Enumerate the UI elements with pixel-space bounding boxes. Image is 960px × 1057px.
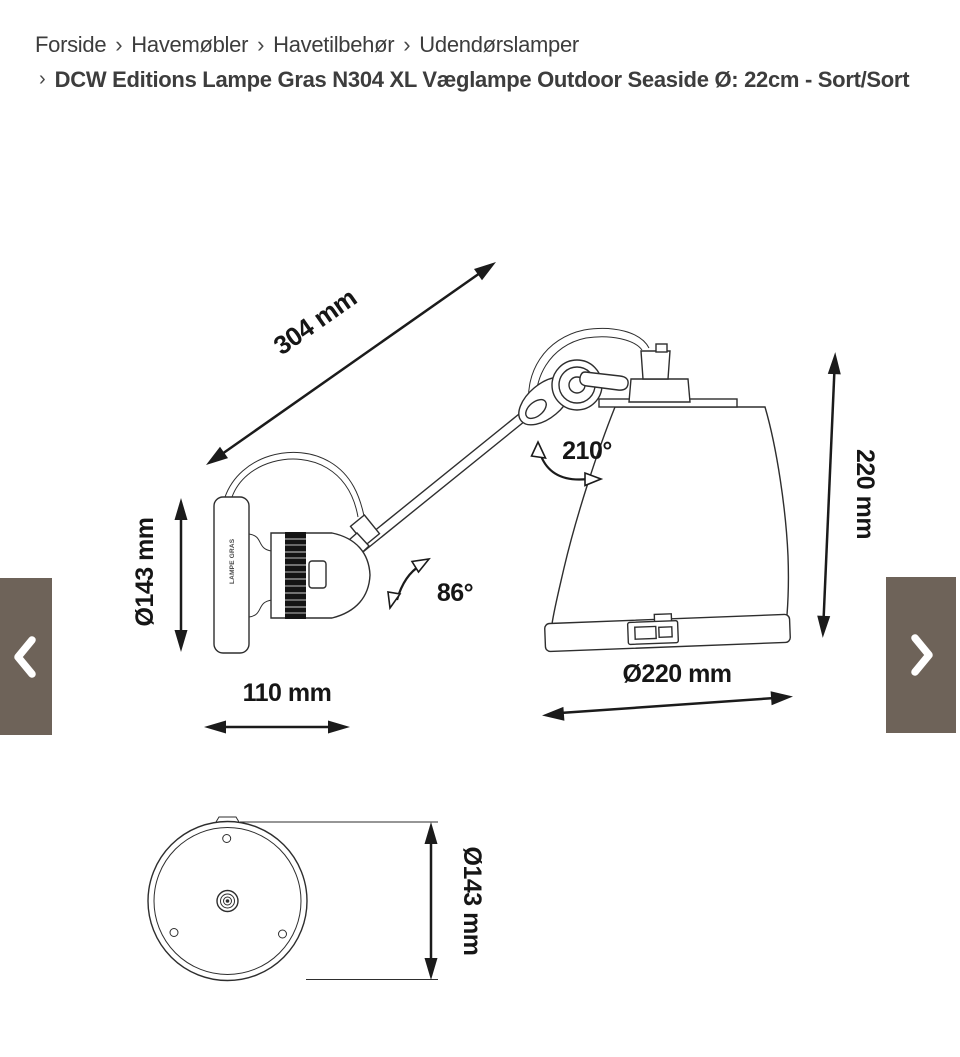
dimension-label-arm-rotation: 86° bbox=[437, 579, 473, 607]
dimension-label-arm-length: 304 mm bbox=[268, 282, 362, 360]
arm-rotation-indicator: 86° bbox=[388, 559, 473, 608]
carousel-prev-button[interactable] bbox=[0, 578, 52, 735]
breadcrumb-separator: › bbox=[115, 32, 122, 57]
bottom-view-diameter-dimension: Ø143 mm bbox=[240, 822, 486, 980]
chevron-left-icon bbox=[11, 635, 41, 679]
carousel-next-button[interactable] bbox=[886, 577, 956, 733]
shade-diameter-dimension: Ø220 mm bbox=[542, 660, 793, 721]
lamp-arm bbox=[341, 410, 530, 561]
breadcrumb-link-havetilbehor[interactable]: Havetilbehør bbox=[273, 32, 394, 57]
breadcrumb-link-udendorslamper[interactable]: Udendørslamper bbox=[419, 32, 579, 57]
wall-plate: LAMPE GRAS bbox=[214, 497, 249, 653]
screw-hole bbox=[170, 929, 178, 937]
base-diameter-dimension: Ø143 mm bbox=[131, 498, 188, 652]
breadcrumb-link-havemobler[interactable]: Havemøbler bbox=[131, 32, 248, 57]
breadcrumb-trail: Forside›Havemøbler›Havetilbehør›Udendørs… bbox=[35, 30, 945, 60]
product-title: DCW Editions Lampe Gras N304 XL Væglampe… bbox=[55, 63, 945, 96]
dimension-label-shade-diameter: Ø220 mm bbox=[622, 660, 731, 688]
knuckle-joint bbox=[249, 532, 370, 619]
head-rotation-indicator: 210° bbox=[532, 437, 612, 486]
product-image[interactable]: 304 mm LAMPE GRAS bbox=[0, 140, 960, 1057]
dimension-label-base-diameter: Ø143 mm bbox=[131, 517, 159, 626]
dimension-label-shade-height: 220 mm bbox=[851, 449, 879, 539]
breadcrumb-link-forside[interactable]: Forside bbox=[35, 32, 106, 57]
dimension-label-bottom-view-diameter: Ø143 mm bbox=[458, 846, 486, 955]
chevron-right-icon bbox=[906, 633, 936, 677]
breadcrumb-separator: › bbox=[257, 32, 264, 57]
dimension-label-head-rotation: 210° bbox=[562, 437, 612, 465]
screw-hole bbox=[223, 835, 231, 843]
breadcrumb-separator: › bbox=[39, 68, 46, 91]
screw-hole bbox=[279, 930, 287, 938]
plate-label: LAMPE GRAS bbox=[229, 538, 236, 584]
breadcrumb: Forside›Havemøbler›Havetilbehør›Udendørs… bbox=[35, 30, 945, 96]
shade-height-dimension: 220 mm bbox=[816, 352, 879, 638]
base-depth-dimension: 110 mm bbox=[204, 679, 350, 734]
breadcrumb-separator: › bbox=[403, 32, 410, 57]
bottom-view bbox=[148, 817, 307, 981]
arm-length-dimension: 304 mm bbox=[206, 262, 496, 465]
dimension-label-base-depth: 110 mm bbox=[243, 679, 332, 707]
